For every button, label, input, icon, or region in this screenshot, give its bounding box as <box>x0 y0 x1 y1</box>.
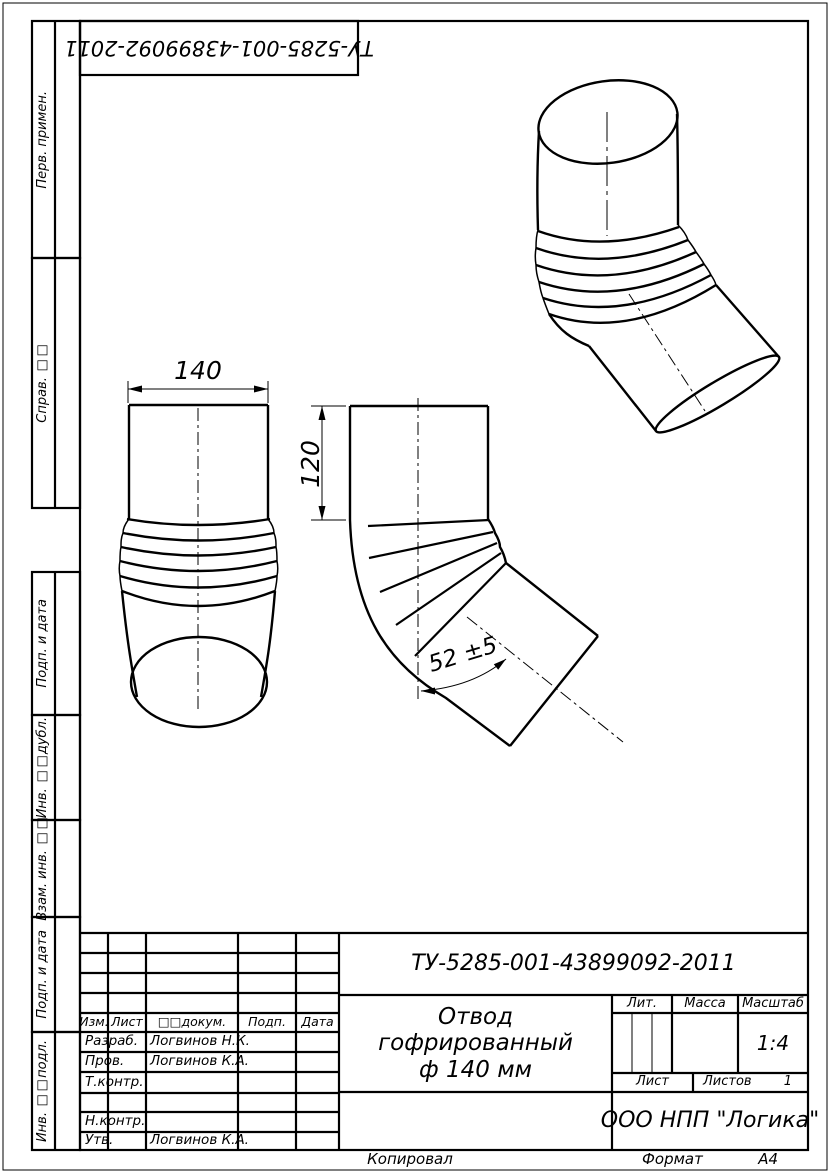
stamp-row-role: Т.контр. <box>82 1072 147 1093</box>
stamp-row-name: Логвинов Н.К. <box>147 1032 240 1052</box>
rev-header-data: Дата <box>296 1013 339 1032</box>
doc-number-top: ТУ-5285-001-43899092-2011 <box>80 21 358 75</box>
sidebar-item-inv-dubl: Инв. □□дубл. <box>32 715 55 820</box>
rev-header-izm: Изм. <box>80 1013 108 1032</box>
view-side-centerlines <box>418 398 623 742</box>
sidebar-item-inv-podl: Инв. □□подл. <box>32 1032 55 1150</box>
sidebar-item-sprav-no: Справ. □□ <box>32 258 55 508</box>
format-label: Формат <box>642 1151 703 1168</box>
stamp-row-role: Разраб. <box>82 1032 147 1052</box>
rev-header-list: Лист <box>108 1013 146 1032</box>
doc-number-stamp: ТУ-5285-001-43899092-2011 <box>339 933 808 995</box>
view-iso-centerline-bottom <box>629 294 705 411</box>
format-cell: Формат А4 <box>620 1150 790 1170</box>
sheets-label: Листов <box>703 1075 752 1090</box>
part-name: Отвод гофрированный ф 140 мм <box>339 995 612 1092</box>
lit-label: Лит. <box>612 995 672 1013</box>
drawing-sheet: ТУ-5285-001-43899092-2011 Перв. примен. … <box>0 0 831 1173</box>
stamp-row-role <box>82 1093 147 1112</box>
stamp-row-role: Утв. <box>82 1132 147 1150</box>
stamp-row-name: Логвинов К.А. <box>147 1052 240 1072</box>
mass-label: Масса <box>672 995 738 1013</box>
stamp-row-name <box>147 1093 240 1112</box>
stamp-row-role: Пров. <box>82 1052 147 1072</box>
part-name-line1: Отвод гофрированный <box>339 1004 612 1057</box>
scale-value: 1:4 <box>738 1013 808 1073</box>
sidebar-item-podp-data-1: Подп. и дата <box>32 572 55 715</box>
company-name: ООО НПП "Логика" <box>612 1092 808 1150</box>
sidebar-item-vzam-inv: Взам. инв. □□ <box>32 820 55 917</box>
dim-width-label: 140 <box>158 356 238 386</box>
stamp-row-name <box>147 1112 240 1132</box>
stamp-row-role: Н.контр. <box>82 1112 147 1132</box>
part-name-line2: ф 140 мм <box>419 1057 532 1083</box>
sheets-cell: Листов 1 <box>693 1073 808 1092</box>
copied-label: Копировал <box>340 1150 480 1170</box>
sidebar-item-podp-data-2: Подп. и дата <box>32 917 55 1032</box>
sheet-label: Лист <box>612 1073 693 1092</box>
scale-label: Масштаб <box>738 995 808 1013</box>
rev-header-ndokum: □□докум. <box>146 1013 238 1032</box>
stamp-row-name <box>147 1072 240 1093</box>
rev-header-podp: Подп. <box>238 1013 296 1032</box>
sheets-value: 1 <box>784 1075 792 1090</box>
view-iso-outline <box>533 72 785 442</box>
format-value: А4 <box>758 1151 778 1168</box>
dim-height-label: 120 <box>275 429 347 499</box>
sidebar-item-perv-primen: Перв. примен. <box>32 21 55 258</box>
stamp-row-name: Логвинов К.А. <box>147 1132 240 1150</box>
view-side-outline <box>350 406 598 746</box>
